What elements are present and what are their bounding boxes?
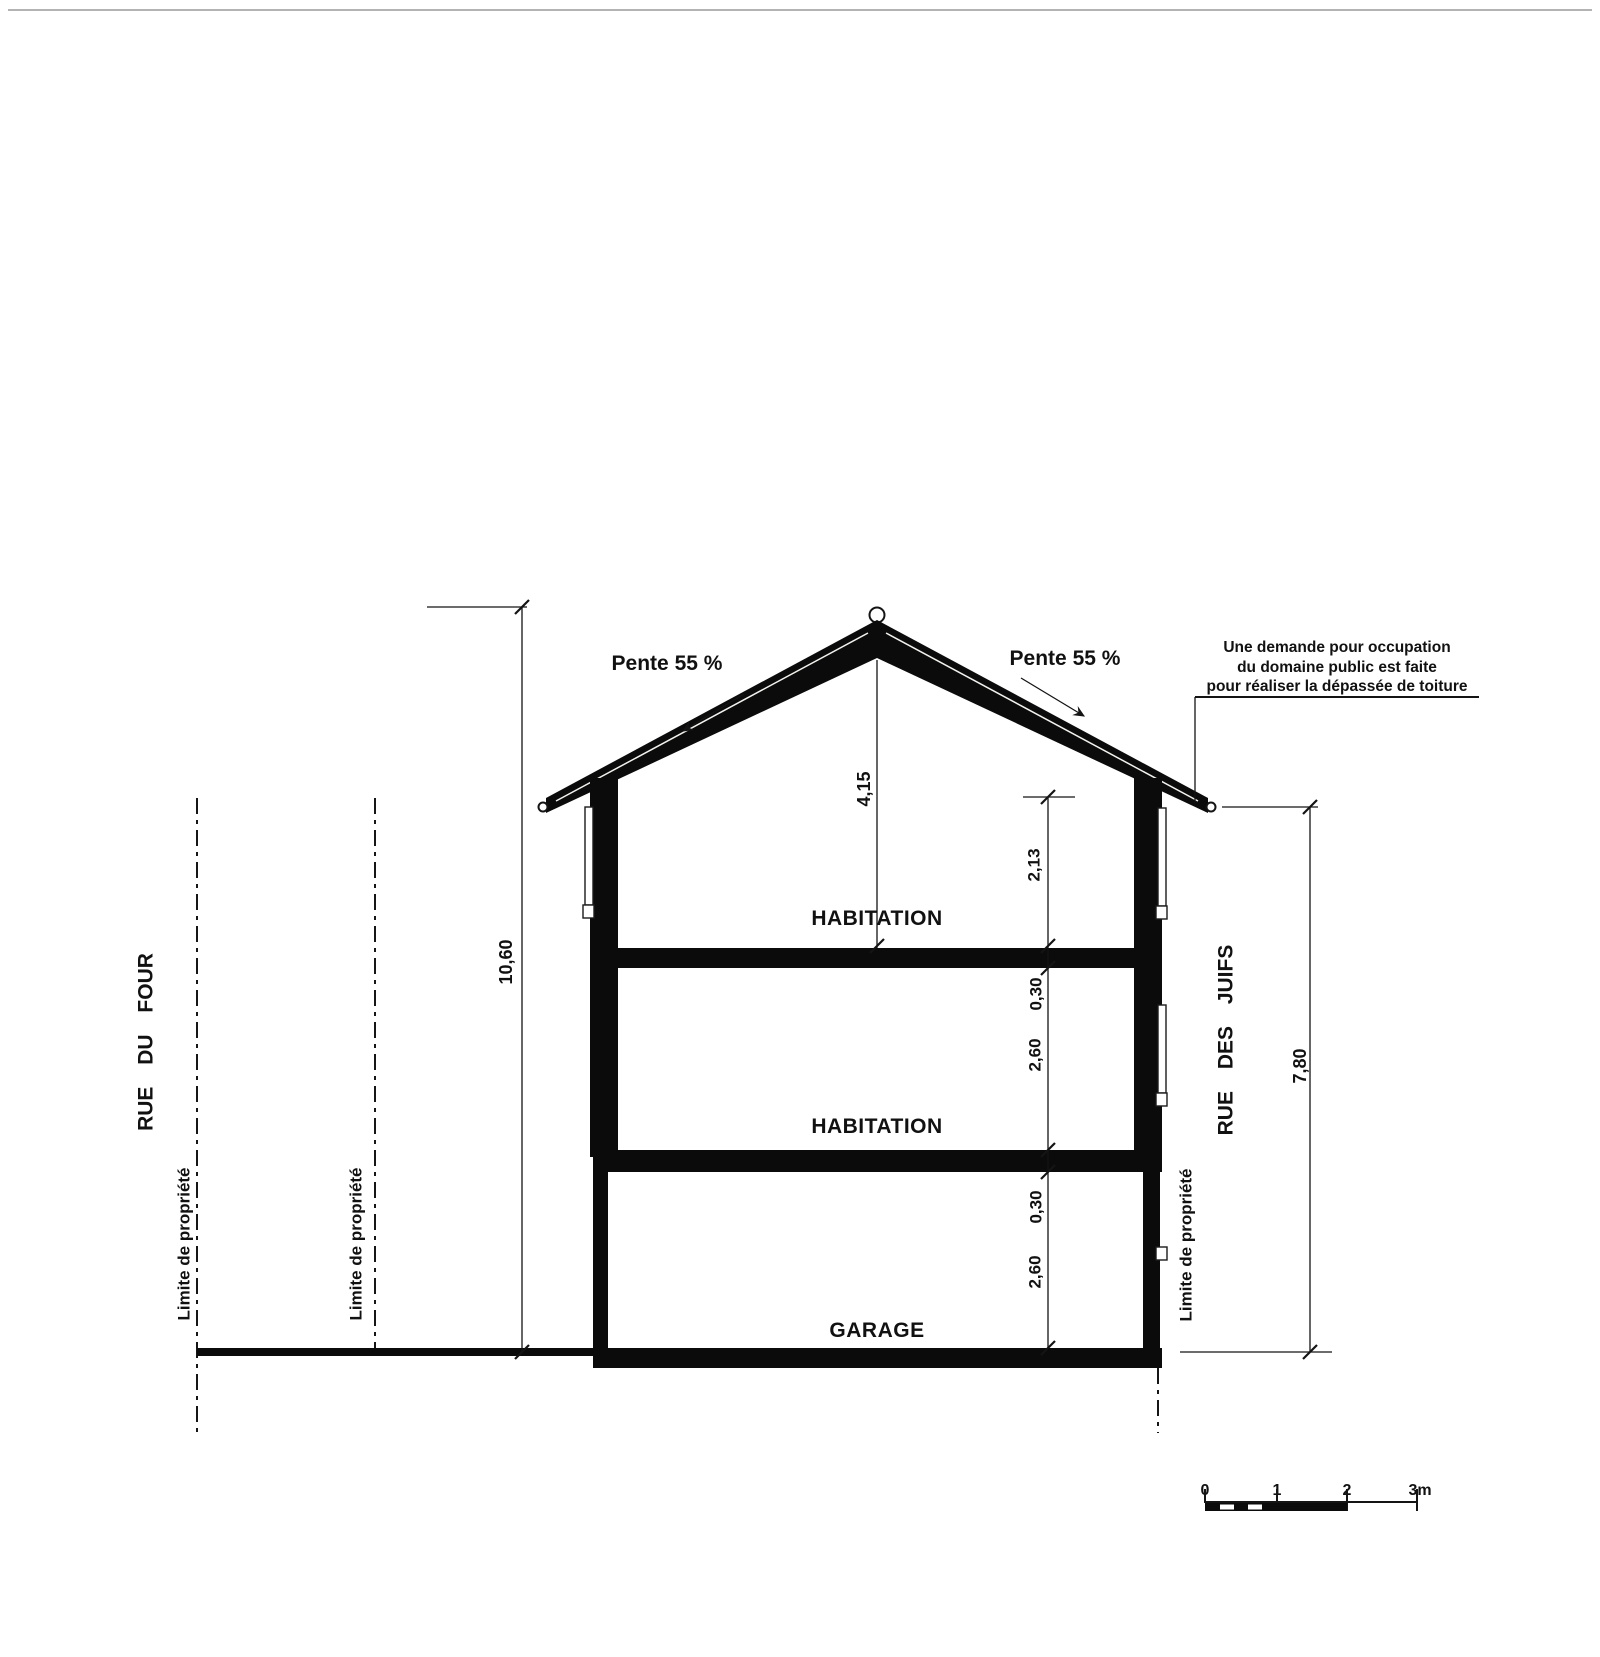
section-drawing-page: 10,60 4,15 2,13 0,30 2,60 0,30 2,60 7,80… [0, 0, 1600, 1657]
limit-label-left-1: Limite de propriété [175, 1167, 194, 1320]
ground-line [197, 1348, 597, 1356]
street-labels: RUE DU FOUR RUE DES JUIFS [135, 945, 1238, 1136]
public-domain-note: Une demande pour occupation du domaine p… [1195, 639, 1479, 803]
room-label-garage: GARAGE [829, 1319, 924, 1342]
dim-label-2-60-upper: 2,60 [1026, 1038, 1045, 1071]
dim-label-10-60: 10,60 [496, 939, 516, 984]
dim-label-7-80: 7,80 [1290, 1048, 1310, 1083]
wall-left-garage [593, 1172, 608, 1350]
dim-label-4-15: 4,15 [854, 771, 874, 806]
dim-label-2-13: 2,13 [1025, 848, 1044, 881]
limit-label-right: Limite de propriété [1177, 1168, 1196, 1321]
floor-slab-upper [590, 948, 1162, 968]
room-label-habitation-lower: HABITATION [811, 1115, 942, 1138]
street-label-rue-du-four: RUE DU FOUR [135, 953, 158, 1131]
gutter-hook-left-icon [539, 803, 548, 812]
pente-left-label: Pente 55 % [612, 652, 723, 675]
window-right-middle-sill [1156, 1093, 1167, 1106]
floor-slab-garage-lip [618, 1150, 1162, 1158]
floor-slab-garage [593, 1157, 1162, 1172]
dimension-storey-chain: 2,13 0,30 2,60 0,30 2,60 [1023, 790, 1075, 1355]
note-line-2: du domaine public est faite [1237, 659, 1437, 676]
window-left-upper [585, 807, 593, 905]
dim-label-0-30-garage: 0,30 [1027, 1190, 1046, 1223]
dimension-total-height: 10,60 [427, 600, 529, 1359]
window-symbols [583, 807, 1167, 1260]
window-right-upper-sill [1156, 906, 1167, 919]
structure [197, 778, 1162, 1368]
note-line-1: Une demande pour occupation [1223, 639, 1450, 656]
section-drawing: 10,60 4,15 2,13 0,30 2,60 0,30 2,60 7,80… [0, 0, 1600, 1657]
dimension-right-facade: 7,80 [1180, 800, 1332, 1359]
scale-bar: 0 1 2 3m [1201, 1482, 1432, 1511]
street-label-rue-des-juifs: RUE DES JUIFS [1215, 945, 1238, 1136]
pente-right-label: Pente 55 % [1010, 647, 1121, 670]
window-right-middle [1158, 1005, 1166, 1093]
garage-floor-slab [593, 1348, 1162, 1368]
dim-label-2-60-garage: 2,60 [1026, 1255, 1045, 1288]
scale-label-3m: 3m [1408, 1482, 1431, 1499]
scale-bar-segment-0-1 [1205, 1503, 1277, 1511]
window-right-garage-sill [1156, 1247, 1167, 1260]
window-right-upper [1158, 808, 1166, 906]
dim-label-0-30-upper: 0,30 [1027, 977, 1046, 1010]
gutter-hook-right-icon [1207, 803, 1216, 812]
room-labels: HABITATION HABITATION GARAGE [811, 907, 942, 1342]
scale-bar-segment-1-2 [1277, 1503, 1347, 1511]
limit-label-left-2: Limite de propriété [347, 1167, 366, 1320]
property-limit-lines [197, 798, 1158, 1435]
window-left-upper-sill [583, 905, 594, 918]
room-label-habitation-upper: HABITATION [811, 907, 942, 930]
note-line-3: pour réaliser la dépassée de toiture [1206, 678, 1467, 695]
